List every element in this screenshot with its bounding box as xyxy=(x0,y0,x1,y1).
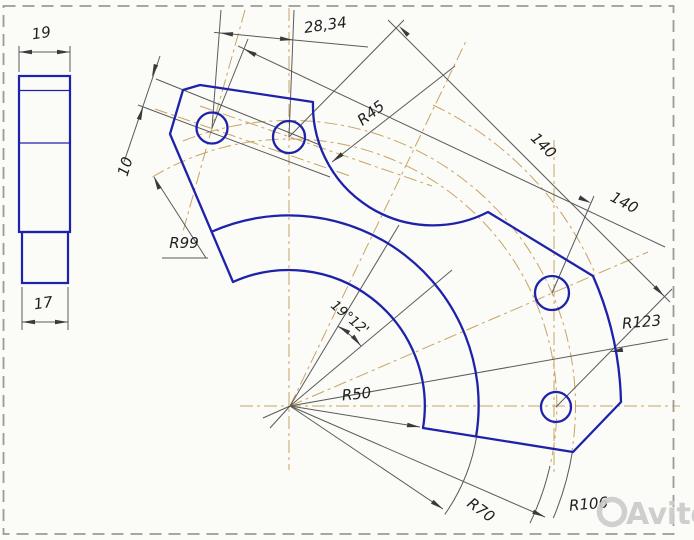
r106-leader xyxy=(290,406,545,517)
dim-label-17: 17 xyxy=(33,293,55,314)
r70-leader xyxy=(290,406,443,509)
dim-label-r45: R45 xyxy=(354,97,388,129)
dim-label-140-lower: 140 xyxy=(607,188,641,217)
sideview-body-lower xyxy=(22,232,68,283)
r45-leader xyxy=(332,66,455,162)
arrowhead xyxy=(399,26,410,37)
arrowhead xyxy=(55,320,68,325)
arrowhead xyxy=(578,195,591,203)
arrowhead xyxy=(137,107,143,120)
dim-label-r99: R99 xyxy=(169,234,199,252)
avito-watermark: Avito xyxy=(600,497,694,532)
dim-label-19: 19 xyxy=(31,23,52,43)
main-view xyxy=(170,85,621,452)
arrowhead xyxy=(407,423,420,428)
blueprint-canvas: 19 17 10 28,34 R45 140 140 R99 19°12' R5… xyxy=(0,0,694,540)
arrowhead xyxy=(57,50,70,55)
side-view xyxy=(19,76,70,283)
dim2834-ext-hole2 xyxy=(289,10,294,137)
centerlines xyxy=(153,8,681,474)
arrowhead xyxy=(280,36,293,41)
dimension-lines xyxy=(19,10,672,523)
centerline-radial-notch xyxy=(290,39,467,406)
avito-watermark-text: Avito xyxy=(626,497,694,532)
arrowhead xyxy=(532,510,545,517)
sheet-dashed-border xyxy=(4,6,674,534)
part-outline xyxy=(170,85,621,452)
centerline-radial-hole1 xyxy=(182,10,245,235)
centerline-arc-r123 xyxy=(433,105,595,273)
centerline-slant-hole2 xyxy=(200,106,432,186)
dim140a-ext-hole4 xyxy=(556,289,672,407)
avito-logo-icon xyxy=(600,500,625,525)
cad-drawing: 19 17 10 28,34 R45 140 140 R99 19°12' R5… xyxy=(0,0,694,540)
dim-label-140-upper: 140 xyxy=(527,129,560,162)
origin-line-tails xyxy=(263,406,290,428)
dim140a-dimline xyxy=(388,20,670,302)
sideview-section-lines xyxy=(19,91,70,144)
arrowhead xyxy=(22,320,35,325)
dim-label-10: 10 xyxy=(114,155,137,179)
dimension-labels: 19 17 10 28,34 R45 140 140 R99 19°12' R5… xyxy=(31,13,662,526)
arrowhead xyxy=(431,500,443,509)
arrowhead xyxy=(244,49,257,57)
dim-label-28-34: 28,34 xyxy=(303,13,348,37)
centerline-arc-r106 xyxy=(183,120,575,451)
dim-label-r50: R50 xyxy=(341,384,372,405)
arrowhead xyxy=(152,64,158,77)
dimension-arrowheads xyxy=(19,26,664,517)
r50-leader xyxy=(290,406,420,427)
dim-label-r123: R123 xyxy=(621,311,661,332)
arrowhead xyxy=(154,177,162,190)
angle-dim-line1 xyxy=(290,270,452,406)
dim-label-r70: R70 xyxy=(464,494,498,526)
dim10-line-upper xyxy=(156,79,320,145)
sideview-dim19-lines xyxy=(19,46,70,72)
sideview-body-upper xyxy=(19,76,70,232)
arrowhead xyxy=(19,50,32,55)
arrowhead xyxy=(653,285,664,296)
